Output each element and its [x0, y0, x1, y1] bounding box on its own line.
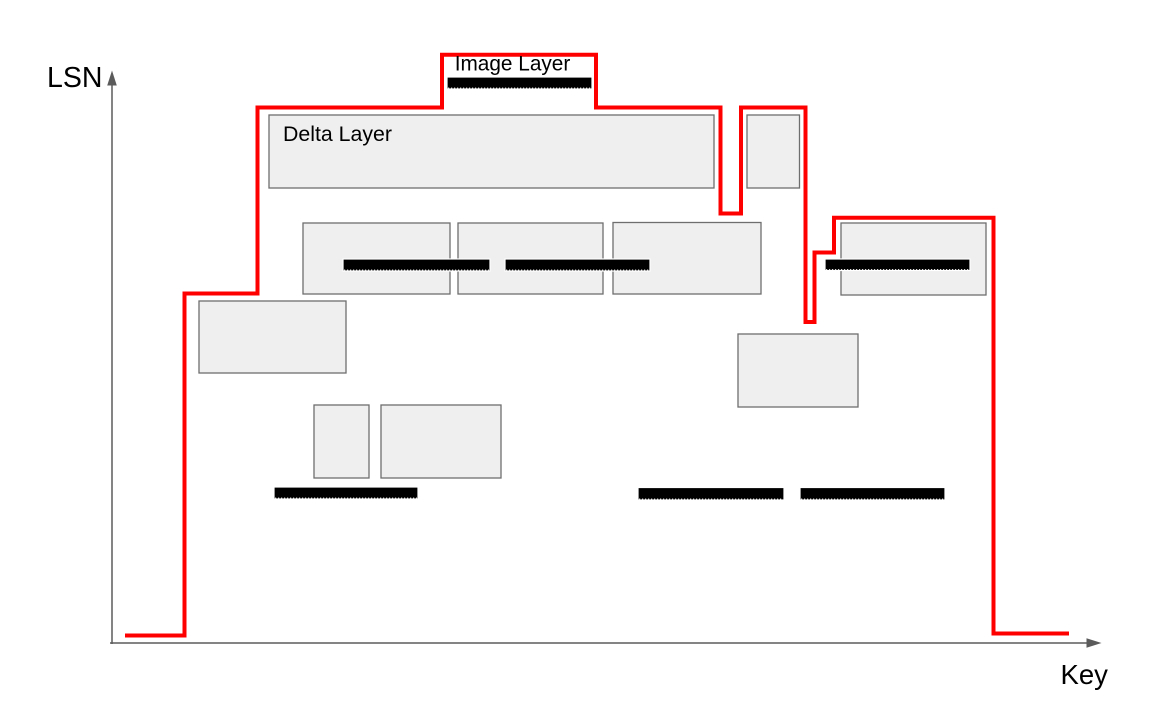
svg-text:Delta Layer: Delta Layer [283, 122, 392, 146]
svg-text:Image Layer: Image Layer [455, 53, 571, 76]
svg-text:LSN: LSN [47, 62, 102, 94]
svg-text:Key: Key [1061, 659, 1109, 690]
